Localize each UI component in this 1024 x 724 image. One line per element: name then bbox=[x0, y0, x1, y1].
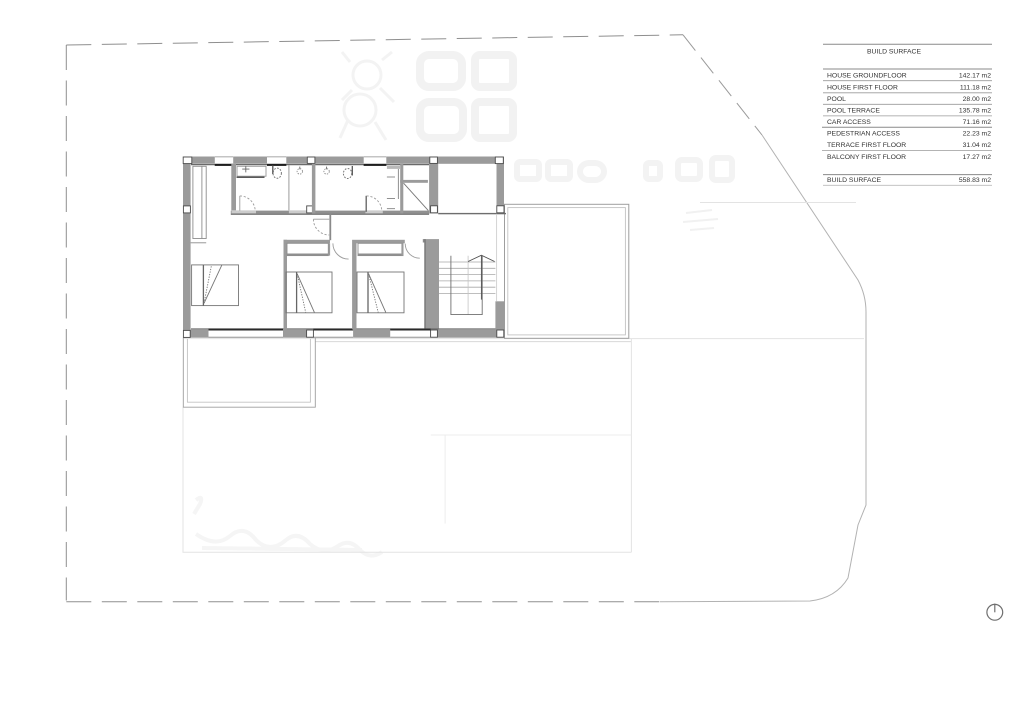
svg-text:558.83 m2: 558.83 m2 bbox=[959, 177, 991, 184]
svg-text:BUILD SURFACE: BUILD SURFACE bbox=[827, 177, 881, 184]
svg-text:POOL TERRACE: POOL TERRACE bbox=[827, 108, 880, 115]
svg-text:BALCONY FIRST FLOOR: BALCONY FIRST FLOOR bbox=[827, 154, 906, 161]
svg-text:PEDESTRIAN ACCESS: PEDESTRIAN ACCESS bbox=[827, 131, 900, 138]
svg-text:71.16 m2: 71.16 m2 bbox=[963, 119, 992, 126]
svg-text:HOUSE GROUNDFLOOR: HOUSE GROUNDFLOOR bbox=[827, 72, 907, 79]
svg-text:135.78 m2: 135.78 m2 bbox=[959, 108, 991, 115]
svg-text:22.23 m2: 22.23 m2 bbox=[963, 131, 992, 138]
svg-text:HOUSE FIRST FLOOR: HOUSE FIRST FLOOR bbox=[827, 84, 898, 91]
svg-text:142.17 m2: 142.17 m2 bbox=[959, 72, 991, 79]
svg-text:111.18 m2: 111.18 m2 bbox=[960, 84, 991, 91]
svg-text:17.27 m2: 17.27 m2 bbox=[963, 154, 992, 161]
svg-text:28.00 m2: 28.00 m2 bbox=[963, 96, 992, 103]
svg-text:BUILD SURFACE: BUILD SURFACE bbox=[867, 49, 921, 56]
svg-text:POOL: POOL bbox=[827, 96, 846, 103]
svg-text:TERRACE FIRST FLOOR: TERRACE FIRST FLOOR bbox=[827, 142, 906, 149]
svg-text:CAR ACCESS: CAR ACCESS bbox=[827, 119, 871, 126]
svg-text:31.04 m2: 31.04 m2 bbox=[963, 142, 992, 149]
